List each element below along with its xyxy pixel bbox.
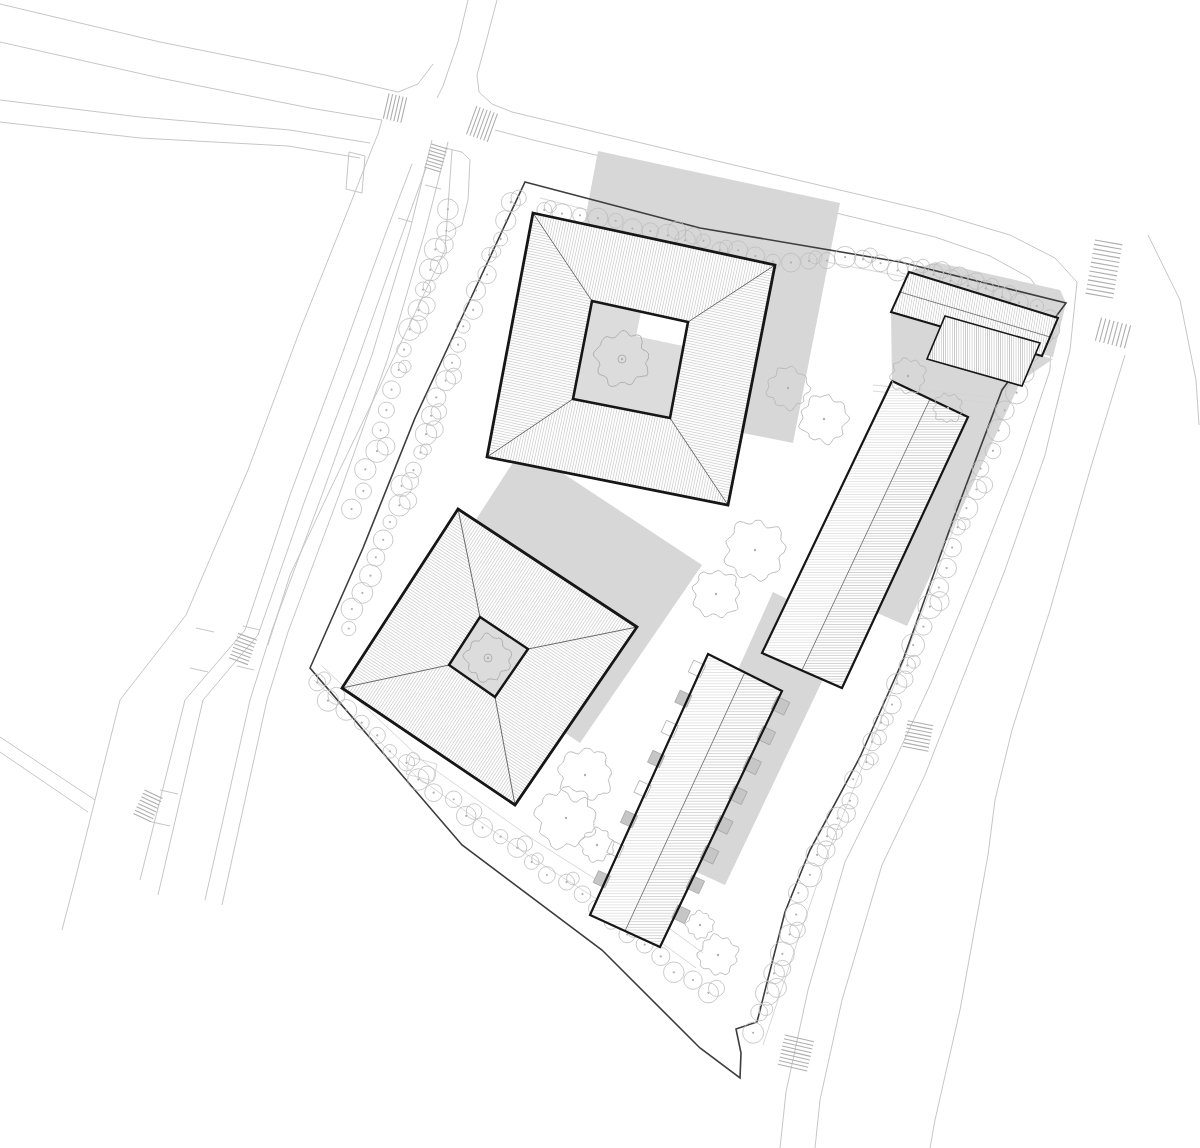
road-line-top-road-right-edge <box>477 0 512 112</box>
median-cap <box>160 790 178 794</box>
median-cap <box>425 185 441 189</box>
crosswalk-east-low <box>778 1035 814 1071</box>
median-cap <box>196 628 214 632</box>
canopy-tree-trunk <box>596 844 598 846</box>
road-line-diagonal-lane-a <box>0 737 95 800</box>
road-line-diagonal-lane-b <box>0 752 88 812</box>
street-trees-west <box>342 199 459 519</box>
median-cap <box>190 668 208 672</box>
canopy-tree-trunk <box>715 593 717 595</box>
crosswalk-west-road <box>383 93 406 122</box>
median-cap <box>237 666 254 670</box>
road-line-avenue-lane3 <box>158 168 426 895</box>
canopy-tree-trunk <box>947 407 949 409</box>
crosswalk-east-top <box>1086 240 1123 298</box>
road-line-west2-road-upper <box>0 100 370 143</box>
road-line-west-road-upper <box>0 4 433 92</box>
crosswalk-east-upper <box>1095 318 1130 349</box>
crosswalk-east-mid <box>903 721 933 751</box>
road-line-avenue-lane2 <box>140 164 412 880</box>
canopy-tree-trunk <box>699 924 701 926</box>
crosswalk-avenue-mid <box>229 633 257 664</box>
road-line-avenue-lane1 <box>62 146 373 930</box>
canopy-tree-trunk <box>907 375 909 377</box>
median-cap <box>398 218 412 222</box>
road-line-west2-road-lower <box>0 122 360 158</box>
canopy-tree-trunk <box>717 954 719 956</box>
north-courtyard-building <box>487 213 775 505</box>
canopy-tree-trunk <box>787 387 789 389</box>
site-plan <box>0 0 1200 1148</box>
road-line-avenue-lane5 <box>222 142 448 905</box>
road-line-west-road-lower <box>0 42 382 146</box>
canopy-tree-trunk <box>823 418 825 420</box>
median-cap <box>152 822 170 826</box>
canopy-tree-trunk <box>565 817 567 819</box>
road-line-top-road-left-edge <box>437 0 468 98</box>
canopy-tree-trunk <box>584 774 586 776</box>
buildings-layer <box>342 213 1058 947</box>
site-plan-drawing <box>0 0 1200 1148</box>
canopy-tree-trunk <box>754 549 756 551</box>
crosswalk-ne-road <box>467 106 498 142</box>
road-line-avenue-lane4 <box>205 140 432 900</box>
canopy-tree <box>534 786 596 850</box>
road-line-east-road-fork <box>1148 235 1199 425</box>
